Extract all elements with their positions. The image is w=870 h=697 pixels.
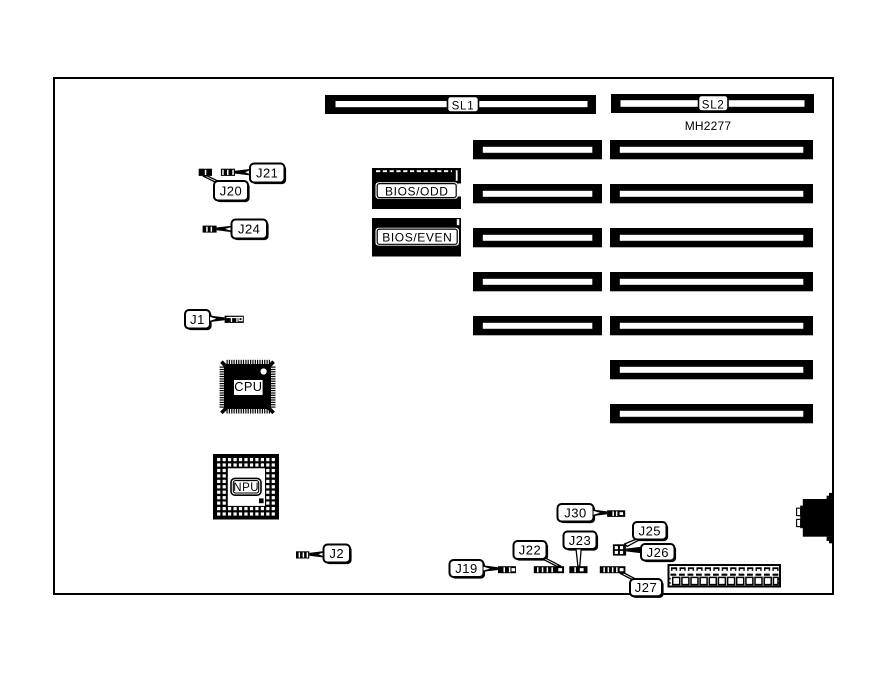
svg-text:J23: J23 — [569, 533, 591, 548]
svg-text:BIOS/EVEN: BIOS/EVEN — [382, 231, 452, 245]
svg-text:J27: J27 — [635, 580, 657, 595]
svg-text:NPU: NPU — [233, 482, 259, 494]
svg-text:J22: J22 — [519, 543, 541, 558]
svg-text:SL1: SL1 — [452, 100, 475, 112]
svg-text:MH2277: MH2277 — [685, 119, 732, 133]
svg-text:J25: J25 — [639, 523, 661, 538]
svg-text:J26: J26 — [647, 545, 669, 560]
svg-text:J1: J1 — [190, 312, 205, 327]
svg-text:J19: J19 — [455, 561, 477, 576]
svg-text:J21: J21 — [256, 166, 278, 181]
svg-text:J30: J30 — [564, 505, 586, 520]
svg-text:CPU: CPU — [234, 379, 262, 394]
svg-text:J24: J24 — [238, 222, 260, 237]
svg-text:J2: J2 — [329, 546, 344, 561]
svg-text:SL2: SL2 — [702, 99, 725, 111]
svg-text:J20: J20 — [220, 183, 242, 198]
svg-text:BIOS/ODD: BIOS/ODD — [385, 184, 448, 198]
